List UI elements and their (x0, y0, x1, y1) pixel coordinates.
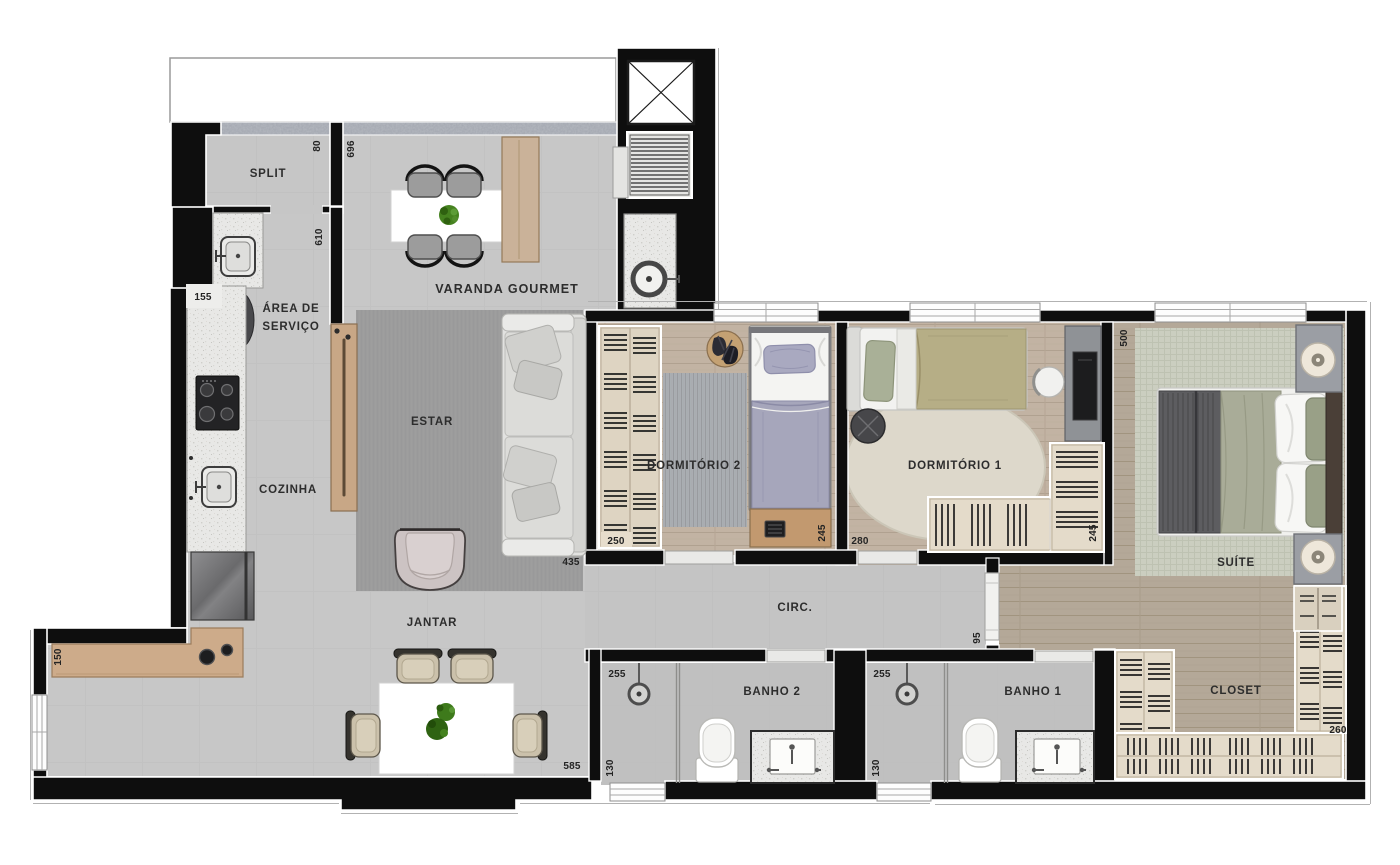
svg-text:COZINHA: COZINHA (259, 484, 317, 496)
svg-text:130: 130 (605, 759, 616, 777)
svg-text:260: 260 (1329, 725, 1347, 736)
svg-text:BANHO 1: BANHO 1 (1004, 686, 1061, 698)
svg-text:585: 585 (563, 761, 581, 772)
svg-text:280: 280 (851, 536, 869, 547)
svg-text:155: 155 (194, 292, 212, 303)
svg-text:SERVIÇO: SERVIÇO (262, 321, 319, 333)
svg-text:DORMITÓRIO 2: DORMITÓRIO 2 (647, 459, 741, 472)
svg-text:ESTAR: ESTAR (411, 416, 453, 428)
svg-text:500: 500 (1119, 329, 1130, 347)
svg-text:255: 255 (873, 669, 891, 680)
svg-text:245: 245 (817, 524, 828, 542)
svg-text:95: 95 (972, 632, 983, 644)
svg-text:245: 245 (1088, 524, 1099, 542)
svg-text:VARANDA GOURMET: VARANDA GOURMET (435, 282, 578, 296)
svg-text:JANTAR: JANTAR (407, 617, 458, 629)
svg-text:BANHO 2: BANHO 2 (743, 686, 800, 698)
svg-text:435: 435 (562, 557, 580, 568)
svg-text:130: 130 (871, 759, 882, 777)
svg-text:DORMITÓRIO 1: DORMITÓRIO 1 (908, 459, 1002, 472)
svg-text:ÁREA DE: ÁREA DE (263, 302, 320, 315)
svg-text:255: 255 (608, 669, 626, 680)
svg-text:250: 250 (607, 536, 625, 547)
svg-text:CLOSET: CLOSET (1210, 685, 1261, 697)
svg-text:80: 80 (312, 140, 323, 152)
svg-text:610: 610 (314, 228, 325, 246)
svg-text:696: 696 (346, 140, 357, 158)
svg-text:CIRC.: CIRC. (777, 602, 812, 614)
svg-text:150: 150 (53, 648, 64, 666)
svg-text:SPLIT: SPLIT (250, 168, 287, 180)
svg-text:SUÍTE: SUÍTE (1217, 556, 1255, 569)
